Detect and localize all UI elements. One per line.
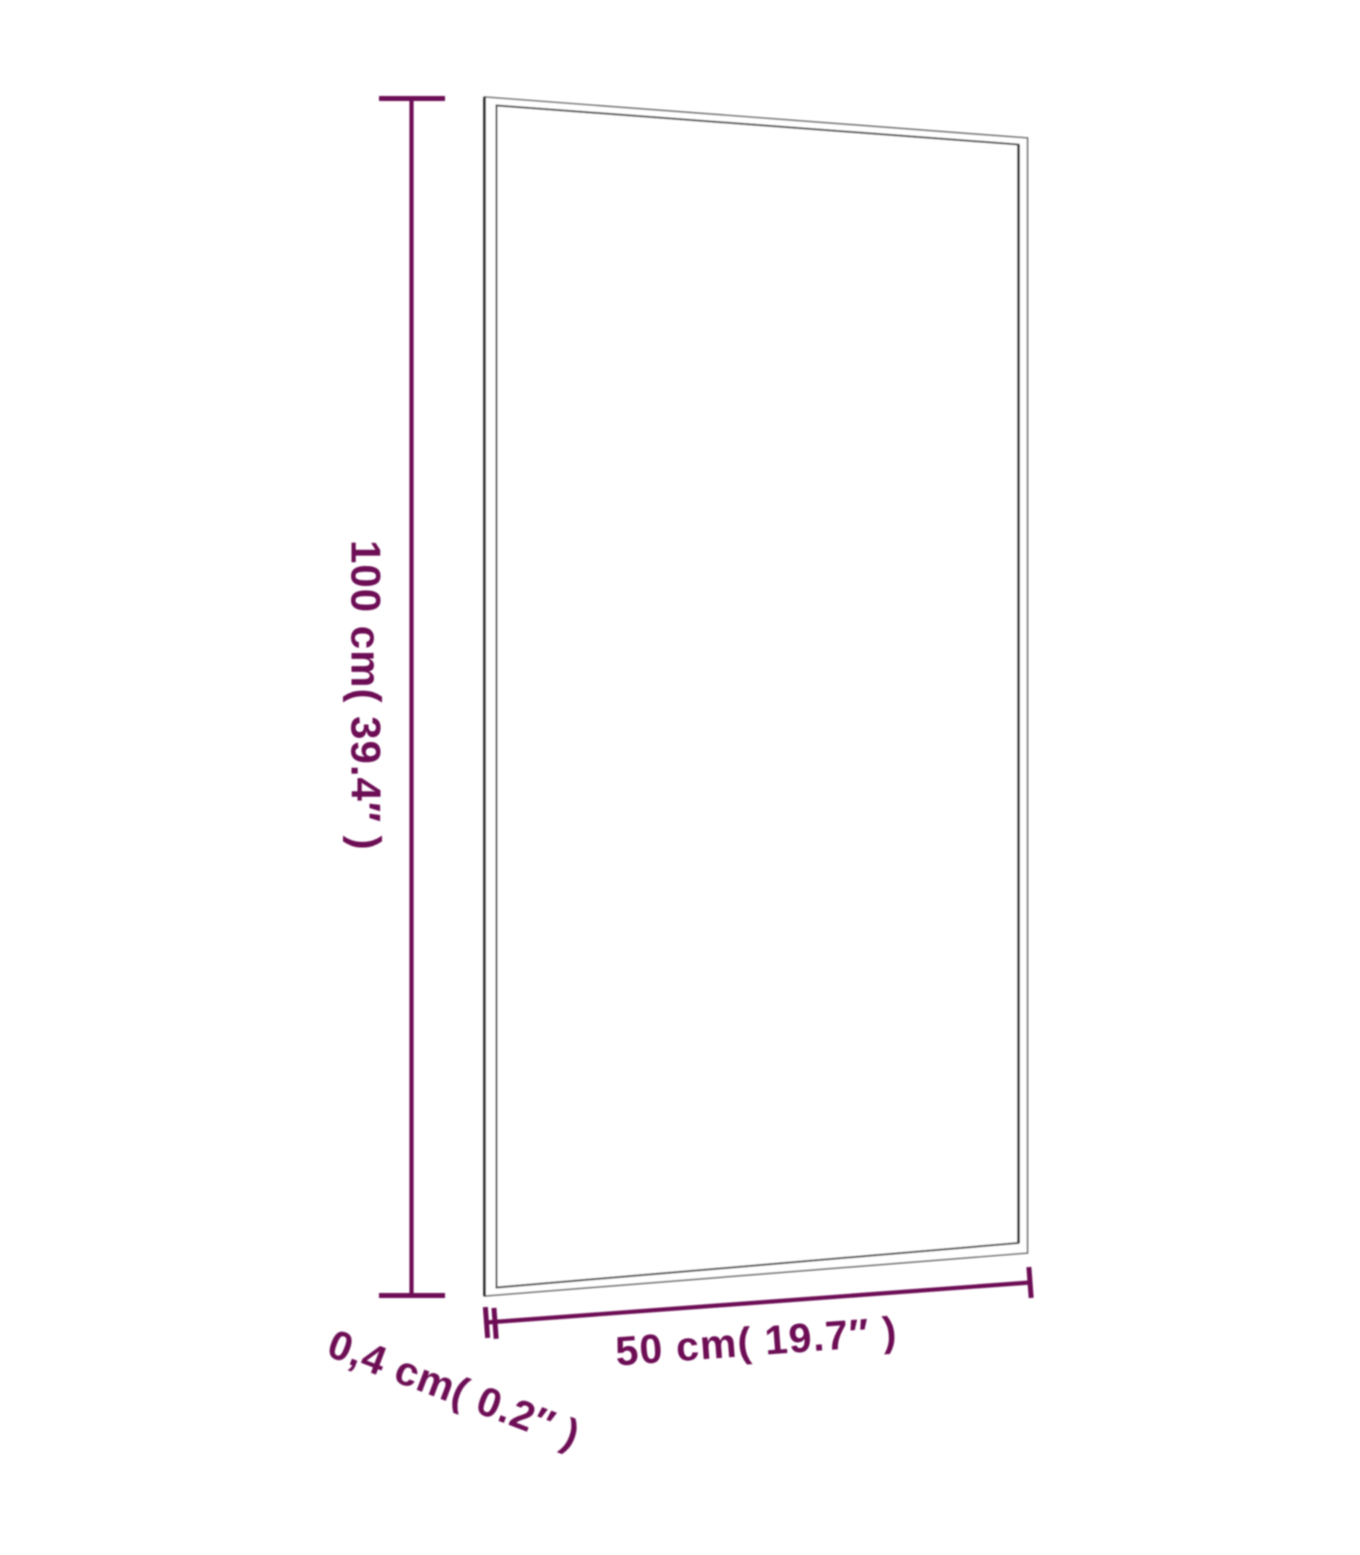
svg-text:0,4 cm( 0.2″ ): 0,4 cm( 0.2″ ) [322,1320,587,1457]
svg-text:50 cm( 19.7″ ): 50 cm( 19.7″ ) [614,1308,899,1375]
svg-text:100 cm( 39.4″ ): 100 cm( 39.4″ ) [343,540,390,851]
